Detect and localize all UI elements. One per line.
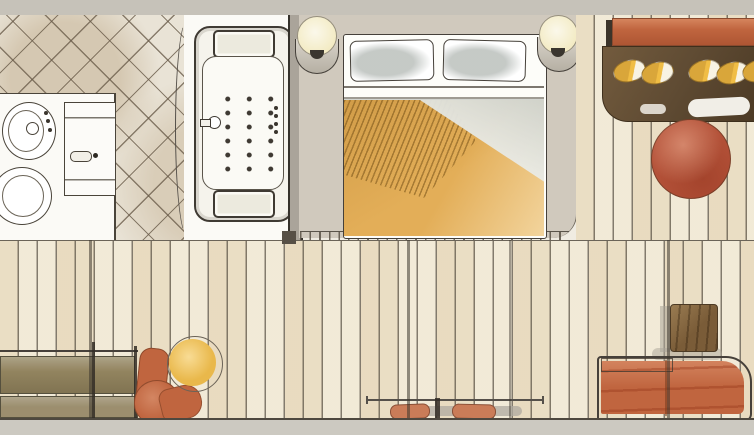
- round-side-table: [169, 339, 216, 386]
- plank-line-heavy: [509, 240, 511, 418]
- bottom-wall: [0, 418, 754, 435]
- plank-line-heavy: [667, 240, 670, 418]
- bench-sofa-seat: [0, 396, 138, 418]
- window-bench-end: [542, 396, 544, 404]
- window-bench-end: [366, 396, 368, 404]
- bench-back-line: [0, 350, 138, 352]
- square-side-table: [670, 304, 718, 352]
- plank-line-heavy: [407, 240, 410, 418]
- window-bench-post: [435, 398, 440, 418]
- floor-plan: [0, 0, 754, 435]
- living-zone: [0, 0, 754, 435]
- bench-post: [92, 342, 95, 426]
- daybed-back-cushion-line: [601, 358, 673, 372]
- window-bench-rail: [366, 399, 544, 401]
- wall-end-post: [282, 231, 296, 244]
- plank-line-heavy: [89, 240, 92, 418]
- bench-sofa-back: [0, 356, 135, 394]
